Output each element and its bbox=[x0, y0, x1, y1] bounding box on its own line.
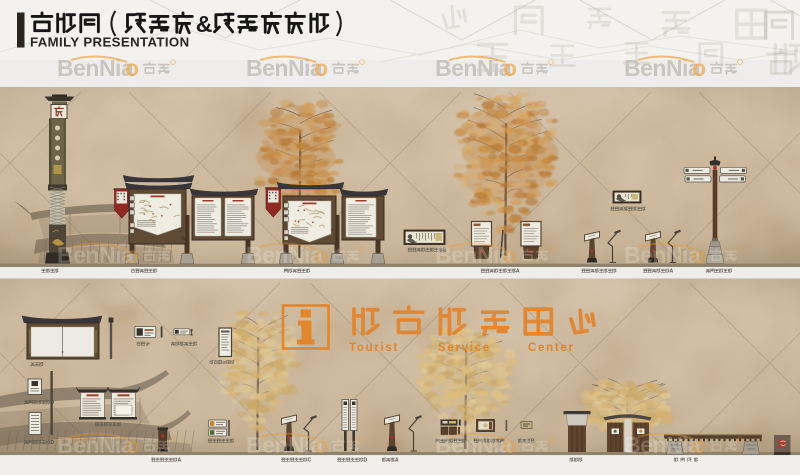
svg-text:Tourist: Tourist bbox=[349, 342, 399, 354]
svg-text:o: o bbox=[503, 242, 517, 268]
svg-text:BenNia: BenNia bbox=[624, 242, 701, 268]
svg-text:o: o bbox=[692, 432, 706, 458]
svg-text:BenNia: BenNia bbox=[57, 55, 134, 81]
svg-text:o: o bbox=[314, 55, 328, 81]
svg-text:A: A bbox=[395, 458, 399, 464]
svg-text:o: o bbox=[314, 242, 328, 268]
svg-text:FAMILY PRESENTATION: FAMILY PRESENTATION bbox=[30, 35, 190, 50]
svg-text:Service: Service bbox=[438, 342, 491, 354]
svg-text:o: o bbox=[503, 55, 517, 81]
svg-text:o: o bbox=[314, 432, 328, 458]
svg-text:BenNia: BenNia bbox=[435, 432, 512, 458]
svg-text:o: o bbox=[692, 55, 706, 81]
svg-text:A: A bbox=[516, 269, 520, 275]
svg-text:BenNia: BenNia bbox=[246, 432, 323, 458]
svg-text:o: o bbox=[125, 242, 139, 268]
svg-text:o: o bbox=[125, 55, 139, 81]
svg-text:o: o bbox=[125, 432, 139, 458]
svg-text:BenNia: BenNia bbox=[435, 242, 512, 268]
svg-text:BenNia: BenNia bbox=[435, 55, 512, 81]
svg-text:o: o bbox=[692, 242, 706, 268]
svg-text:D: D bbox=[50, 440, 54, 446]
svg-text:BenNia: BenNia bbox=[624, 55, 701, 81]
svg-text:&: & bbox=[196, 11, 213, 37]
svg-text:BenNia: BenNia bbox=[246, 242, 323, 268]
svg-text:Center: Center bbox=[528, 342, 575, 354]
svg-text:BenNia: BenNia bbox=[624, 432, 701, 458]
svg-text:A: A bbox=[177, 458, 181, 464]
svg-text:BenNia: BenNia bbox=[246, 55, 323, 81]
svg-text:C: C bbox=[307, 458, 311, 464]
svg-text:o: o bbox=[503, 432, 517, 458]
svg-text:BenNia: BenNia bbox=[57, 432, 134, 458]
svg-text:D: D bbox=[363, 458, 367, 464]
svg-text:BenNia: BenNia bbox=[57, 242, 134, 268]
svg-text:A: A bbox=[669, 269, 673, 275]
